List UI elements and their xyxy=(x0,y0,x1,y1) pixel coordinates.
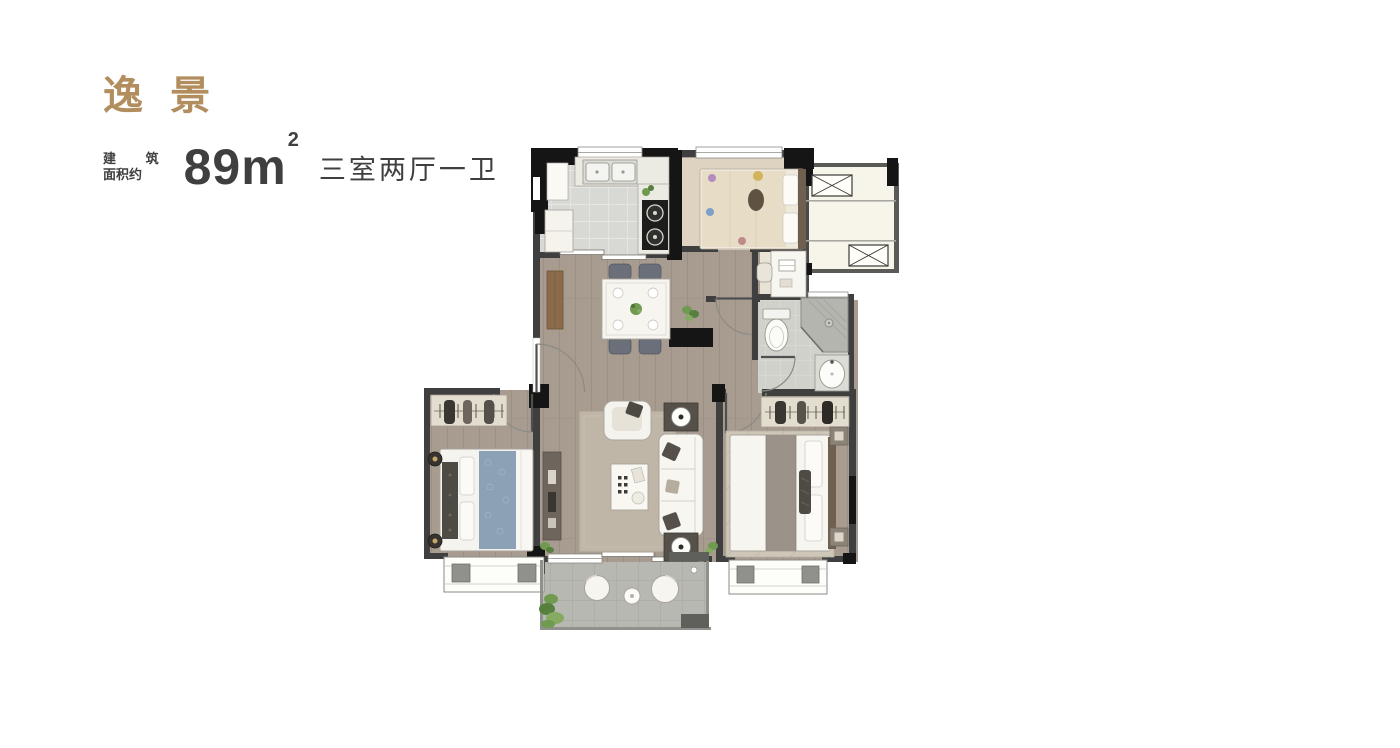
balcony-chair xyxy=(652,576,679,603)
armchair xyxy=(604,401,651,440)
floor-plan xyxy=(420,140,910,652)
nightstand-icon xyxy=(830,528,848,546)
area-label-line1: 建 筑 xyxy=(103,151,172,167)
area-superscript: 2 xyxy=(288,129,300,151)
nightstand-icon xyxy=(428,452,442,466)
kitchen-window xyxy=(578,147,642,158)
coffee-table xyxy=(611,464,648,510)
area-label: 建 筑 面积约 xyxy=(103,151,172,183)
plan-title: 逸 景 xyxy=(103,76,499,116)
living-window xyxy=(548,554,602,563)
ac-unit-box-icon xyxy=(849,245,888,266)
stove-icon xyxy=(642,200,668,250)
ac-unit-box-icon xyxy=(812,175,852,196)
fridge-icon xyxy=(545,210,573,252)
bedroom2-bed xyxy=(440,449,533,551)
centerpiece-plant-icon xyxy=(630,303,642,315)
bathroom-sink-icon xyxy=(815,355,849,391)
master-wardrobe xyxy=(761,397,849,427)
bedroom3-window xyxy=(696,147,782,158)
nightstand-icon xyxy=(428,534,442,548)
master-bed xyxy=(730,435,836,551)
sofa xyxy=(659,434,703,536)
page: 逸 景 建 筑 面积约 89m2 三室两厅一卫 xyxy=(0,0,1400,748)
nightstand-icon xyxy=(830,427,848,445)
tv-cabinet xyxy=(543,452,561,540)
balcony-table xyxy=(624,588,640,604)
bedroom2-bay-window xyxy=(444,557,544,592)
toilet-icon xyxy=(763,309,790,351)
bedroom2-wardrobe xyxy=(431,395,507,426)
balcony-rail xyxy=(540,560,543,630)
entry-niche xyxy=(547,163,568,200)
master-bay-window xyxy=(729,560,827,594)
balcony-chair xyxy=(585,576,610,601)
area-label-line2: 面积约 xyxy=(103,167,172,183)
bedroom3-bed xyxy=(700,169,806,249)
sink-icon xyxy=(583,160,637,184)
area-value: 89m2 xyxy=(184,146,299,189)
desk-chair xyxy=(757,263,772,282)
side-table-lamp-icon xyxy=(664,403,698,431)
